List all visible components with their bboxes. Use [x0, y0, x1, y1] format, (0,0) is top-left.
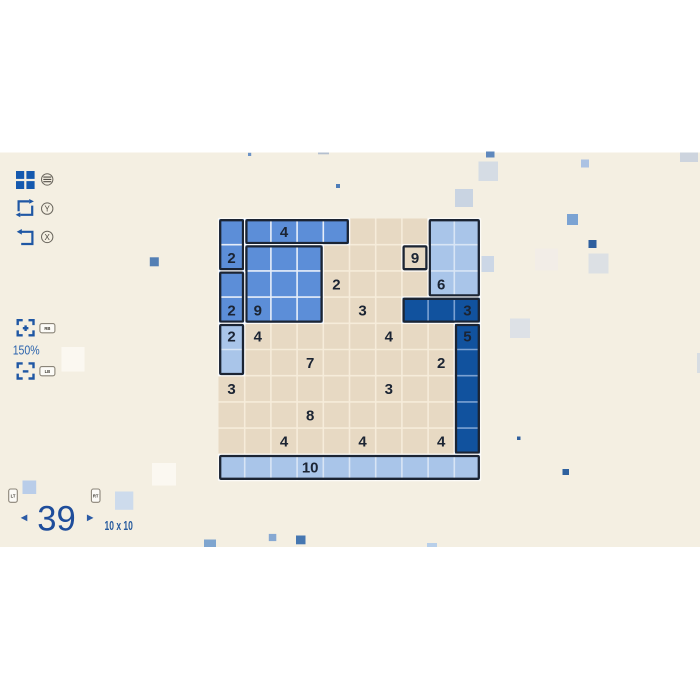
svg-text:2: 2 — [437, 355, 445, 372]
svg-text:8: 8 — [306, 407, 314, 424]
svg-text:2: 2 — [332, 276, 340, 293]
svg-text:LB: LB — [45, 369, 51, 374]
svg-text:3: 3 — [358, 303, 366, 320]
svg-text:X: X — [45, 233, 51, 242]
svg-text:9: 9 — [254, 303, 262, 320]
svg-text:6: 6 — [437, 276, 445, 293]
svg-text:4: 4 — [358, 434, 367, 451]
svg-text:2: 2 — [227, 250, 235, 267]
svg-text:3: 3 — [463, 303, 471, 320]
svg-text:5: 5 — [463, 329, 471, 346]
svg-text:2: 2 — [227, 329, 235, 346]
svg-text:9: 9 — [411, 250, 419, 267]
svg-text:3: 3 — [385, 381, 393, 398]
svg-text:RT: RT — [93, 493, 99, 498]
svg-text:RB: RB — [44, 326, 50, 331]
svg-text:10: 10 — [302, 460, 319, 477]
svg-text:150%: 150% — [13, 343, 40, 358]
svg-text:4: 4 — [280, 224, 289, 241]
svg-text:4: 4 — [280, 434, 289, 451]
svg-text:Y: Y — [45, 205, 51, 214]
svg-text:39: 39 — [37, 500, 76, 539]
svg-text:10 x 10: 10 x 10 — [105, 519, 133, 533]
svg-text:7: 7 — [306, 355, 314, 372]
svg-text:LT: LT — [11, 493, 16, 498]
svg-text:4: 4 — [254, 329, 263, 346]
svg-text:2: 2 — [227, 303, 235, 320]
svg-text:4: 4 — [437, 434, 446, 451]
svg-text:4: 4 — [385, 329, 394, 346]
svg-text:3: 3 — [227, 381, 235, 398]
